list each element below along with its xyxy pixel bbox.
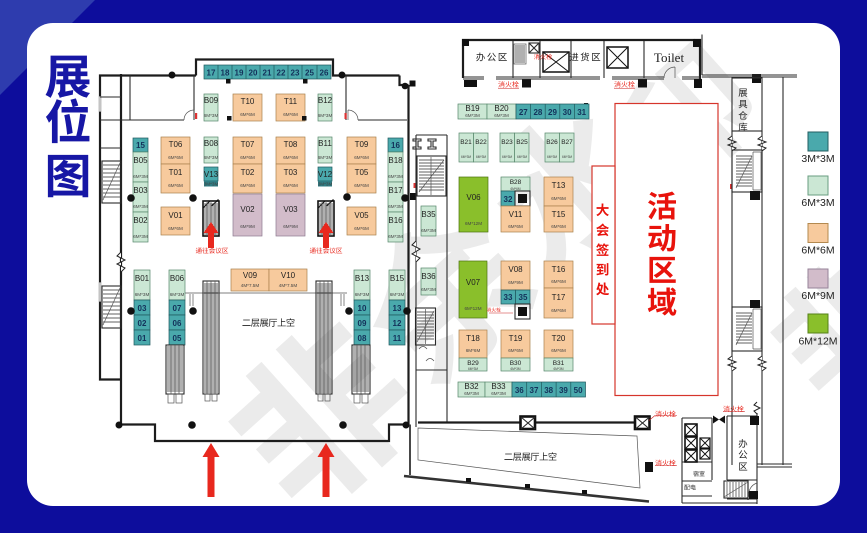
svg-text:V10: V10 (281, 271, 296, 280)
svg-text:31: 31 (577, 108, 586, 117)
svg-text:6M*6M: 6M*6M (168, 226, 183, 231)
svg-text:V06: V06 (466, 193, 481, 202)
svg-text:6M*6M: 6M*6M (551, 348, 566, 353)
svg-text:6M*9M: 6M*9M (240, 224, 255, 229)
svg-text:6M*6M: 6M*6M (283, 155, 298, 160)
svg-text:6M*9M: 6M*9M (801, 290, 834, 302)
svg-text:B05: B05 (133, 156, 148, 165)
svg-text:6M*3M: 6M*3M (510, 367, 520, 371)
svg-text:08: 08 (358, 334, 367, 343)
svg-text:T17: T17 (552, 293, 566, 302)
svg-text:20: 20 (249, 69, 258, 78)
svg-text:6M*9M: 6M*9M (283, 224, 298, 229)
svg-text:6M*3M: 6M*3M (494, 113, 509, 118)
svg-text:T18: T18 (466, 334, 480, 343)
svg-text:6M*9M: 6M*9M (508, 280, 523, 285)
svg-text:B22: B22 (475, 139, 487, 146)
svg-text:V08: V08 (508, 265, 523, 274)
svg-text:3M*3M: 3M*3M (801, 153, 834, 165)
svg-text:T11: T11 (284, 97, 298, 106)
svg-text:23: 23 (291, 69, 300, 78)
svg-text:B19: B19 (465, 104, 480, 113)
svg-text:V09: V09 (243, 271, 258, 280)
svg-text:03: 03 (138, 304, 147, 313)
svg-text:B15: B15 (390, 274, 405, 283)
svg-text:6M*6M: 6M*6M (354, 183, 369, 188)
svg-text:28: 28 (533, 108, 542, 117)
svg-text:6M*12M: 6M*12M (464, 306, 481, 311)
svg-text:6M*3M: 6M*3M (135, 292, 150, 297)
svg-text:6M*3M: 6M*3M (801, 197, 834, 209)
svg-text:6M*3M: 6M*3M (464, 391, 479, 396)
svg-text:B09: B09 (204, 96, 219, 105)
svg-text:6M*3M: 6M*3M (204, 113, 219, 118)
svg-text:B23: B23 (501, 139, 513, 146)
svg-text:09: 09 (358, 319, 367, 328)
svg-text:17: 17 (207, 69, 216, 78)
svg-text:6M*6M: 6M*6M (508, 348, 523, 353)
svg-text:B20: B20 (494, 104, 509, 113)
svg-text:6M*6M: 6M*6M (354, 155, 369, 160)
svg-text:T20: T20 (552, 334, 566, 343)
svg-text:26: 26 (320, 69, 329, 78)
svg-text:6M*3M: 6M*3M (388, 204, 403, 209)
svg-text:11: 11 (393, 334, 402, 343)
svg-text:18: 18 (221, 69, 230, 78)
svg-text:06: 06 (173, 319, 182, 328)
svg-text:25: 25 (305, 69, 314, 78)
svg-text:V02: V02 (240, 205, 255, 214)
svg-text:6M*6M: 6M*6M (551, 196, 566, 201)
svg-text:12: 12 (393, 319, 402, 328)
svg-text:B18: B18 (388, 156, 403, 165)
svg-text:50: 50 (574, 386, 583, 395)
svg-text:T10: T10 (241, 97, 255, 106)
svg-text:6M*3M: 6M*3M (318, 155, 333, 160)
svg-text:B29: B29 (467, 360, 479, 367)
svg-text:B03: B03 (133, 186, 148, 195)
svg-text:35: 35 (519, 293, 528, 302)
svg-text:6M*6M: 6M*6M (283, 183, 298, 188)
svg-text:19: 19 (235, 69, 244, 78)
svg-text:T06: T06 (169, 140, 183, 149)
svg-text:10: 10 (358, 304, 367, 313)
svg-text:B26: B26 (546, 139, 558, 146)
svg-text:B13: B13 (355, 274, 370, 283)
svg-text:6M*3M: 6M*3M (133, 174, 148, 179)
svg-text:6M*3M: 6M*3M (388, 234, 403, 239)
svg-text:V05: V05 (354, 211, 369, 220)
svg-text:B35: B35 (421, 210, 436, 219)
svg-text:6M*6M: 6M*6M (283, 112, 298, 117)
svg-text:B33: B33 (491, 382, 506, 391)
svg-text:6M*3M: 6M*3M (468, 367, 478, 371)
svg-text:6M*3M: 6M*3M (461, 155, 471, 159)
svg-text:T05: T05 (355, 168, 369, 177)
svg-text:B25: B25 (516, 139, 528, 146)
svg-text:15: 15 (136, 141, 145, 150)
svg-text:6M*6M: 6M*6M (168, 183, 183, 188)
svg-text:V01: V01 (168, 211, 183, 220)
svg-text:01: 01 (138, 334, 147, 343)
svg-text:6M*6M: 6M*6M (240, 155, 255, 160)
svg-text:6M*3M: 6M*3M (517, 155, 527, 159)
svg-text:V03: V03 (283, 205, 298, 214)
svg-text:B32: B32 (464, 382, 479, 391)
svg-text:37: 37 (530, 386, 539, 395)
svg-text:39: 39 (559, 386, 568, 395)
svg-text:05: 05 (173, 334, 182, 343)
svg-text:07: 07 (173, 304, 182, 313)
svg-text:02: 02 (138, 319, 147, 328)
svg-text:B28: B28 (510, 179, 522, 186)
svg-text:6M*3M: 6M*3M (133, 204, 148, 209)
svg-text:V12: V12 (318, 170, 333, 179)
svg-text:6M*3M: 6M*3M (553, 367, 563, 371)
svg-text:V11: V11 (509, 210, 523, 219)
svg-text:B16: B16 (388, 216, 403, 225)
svg-text:6M*6M: 6M*6M (240, 112, 255, 117)
svg-text:T13: T13 (552, 181, 566, 190)
svg-text:T09: T09 (355, 140, 369, 149)
svg-text:38: 38 (544, 386, 553, 395)
svg-text:6M*12M: 6M*12M (465, 221, 482, 226)
svg-text:6M*6M: 6M*6M (168, 155, 183, 160)
svg-text:6M*3M: 6M*3M (421, 228, 436, 233)
svg-text:6M*12M: 6M*12M (798, 336, 837, 348)
svg-text:Toilet: Toilet (654, 50, 685, 65)
svg-text:29: 29 (548, 108, 557, 117)
svg-text:B36: B36 (421, 272, 436, 281)
svg-text:B31: B31 (553, 360, 565, 367)
svg-text:B12: B12 (318, 96, 333, 105)
svg-text:6M*3M: 6M*3M (388, 174, 403, 179)
svg-text:6M*6M: 6M*6M (354, 226, 369, 231)
svg-text:6M*3M: 6M*3M (476, 155, 486, 159)
svg-text:6M*6M: 6M*6M (801, 245, 834, 257)
svg-text:B02: B02 (133, 216, 148, 225)
svg-text:4M*7.5M: 4M*7.5M (279, 283, 298, 288)
svg-text:B06: B06 (170, 274, 185, 283)
svg-text:B11: B11 (318, 139, 332, 148)
svg-text:V07: V07 (466, 278, 481, 287)
svg-text:T07: T07 (241, 140, 255, 149)
svg-text:27: 27 (519, 108, 528, 117)
svg-text:6M*3M: 6M*3M (502, 155, 512, 159)
svg-text:T01: T01 (169, 168, 183, 177)
svg-text:6M*6M: 6M*6M (510, 187, 520, 191)
svg-text:6M*6M: 6M*6M (466, 348, 481, 353)
svg-text:6M*6M: 6M*6M (551, 224, 566, 229)
svg-text:T19: T19 (509, 334, 523, 343)
svg-text:32: 32 (504, 195, 513, 204)
svg-text:30: 30 (563, 108, 572, 117)
svg-text:6M*6M: 6M*6M (551, 279, 566, 284)
svg-text:6M*3M: 6M*3M (355, 292, 370, 297)
svg-text:33: 33 (504, 293, 513, 302)
svg-text:6M*3M: 6M*3M (390, 292, 405, 297)
svg-text:3M*3M: 3M*3M (318, 182, 333, 187)
svg-text:6M*6M: 6M*6M (551, 308, 566, 313)
svg-text:6M*3M: 6M*3M (133, 234, 148, 239)
svg-text:36: 36 (515, 386, 524, 395)
svg-text:3M*3M: 3M*3M (204, 182, 219, 187)
svg-text:16: 16 (391, 141, 400, 150)
svg-text:B08: B08 (204, 139, 219, 148)
svg-text:6M*6M: 6M*6M (508, 224, 523, 229)
svg-text:6M*6M: 6M*6M (240, 183, 255, 188)
svg-text:T02: T02 (241, 168, 255, 177)
svg-text:V13: V13 (204, 170, 219, 179)
svg-text:6M*3M: 6M*3M (562, 155, 572, 159)
svg-text:13: 13 (393, 304, 402, 313)
svg-text:6M*3M: 6M*3M (170, 292, 185, 297)
svg-text:T03: T03 (284, 168, 298, 177)
svg-text:T16: T16 (552, 265, 566, 274)
svg-text:T08: T08 (284, 140, 298, 149)
svg-text:22: 22 (277, 69, 286, 78)
svg-text:6M*3M: 6M*3M (491, 391, 506, 396)
svg-text:4M*7.5M: 4M*7.5M (241, 283, 260, 288)
svg-text:B01: B01 (135, 274, 150, 283)
svg-text:T15: T15 (552, 210, 566, 219)
svg-text:6M*3M: 6M*3M (421, 287, 436, 292)
svg-text:B21: B21 (460, 139, 472, 146)
svg-text:6M*3M: 6M*3M (204, 155, 219, 160)
svg-text:B17: B17 (388, 186, 403, 195)
svg-text:6M*3M: 6M*3M (465, 113, 480, 118)
svg-text:21: 21 (263, 69, 272, 78)
svg-text:B27: B27 (561, 139, 573, 146)
svg-text:6M*3M: 6M*3M (318, 113, 333, 118)
svg-text:6M*3M: 6M*3M (547, 155, 557, 159)
svg-text:B30: B30 (510, 360, 522, 367)
